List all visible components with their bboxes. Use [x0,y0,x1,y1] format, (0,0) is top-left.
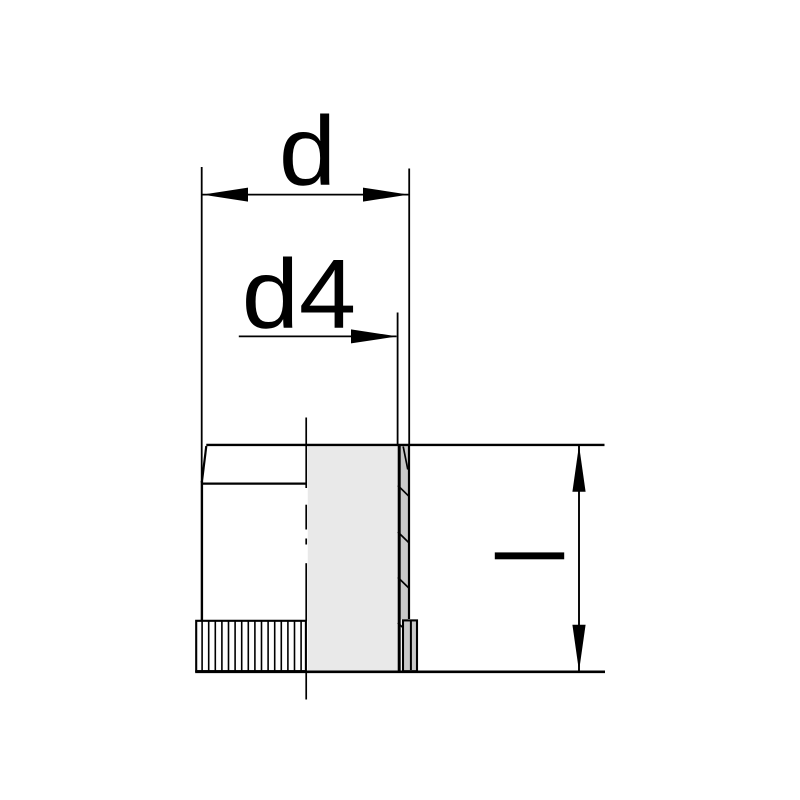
svg-text:d4: d4 [242,240,356,349]
svg-text:d: d [279,97,336,206]
